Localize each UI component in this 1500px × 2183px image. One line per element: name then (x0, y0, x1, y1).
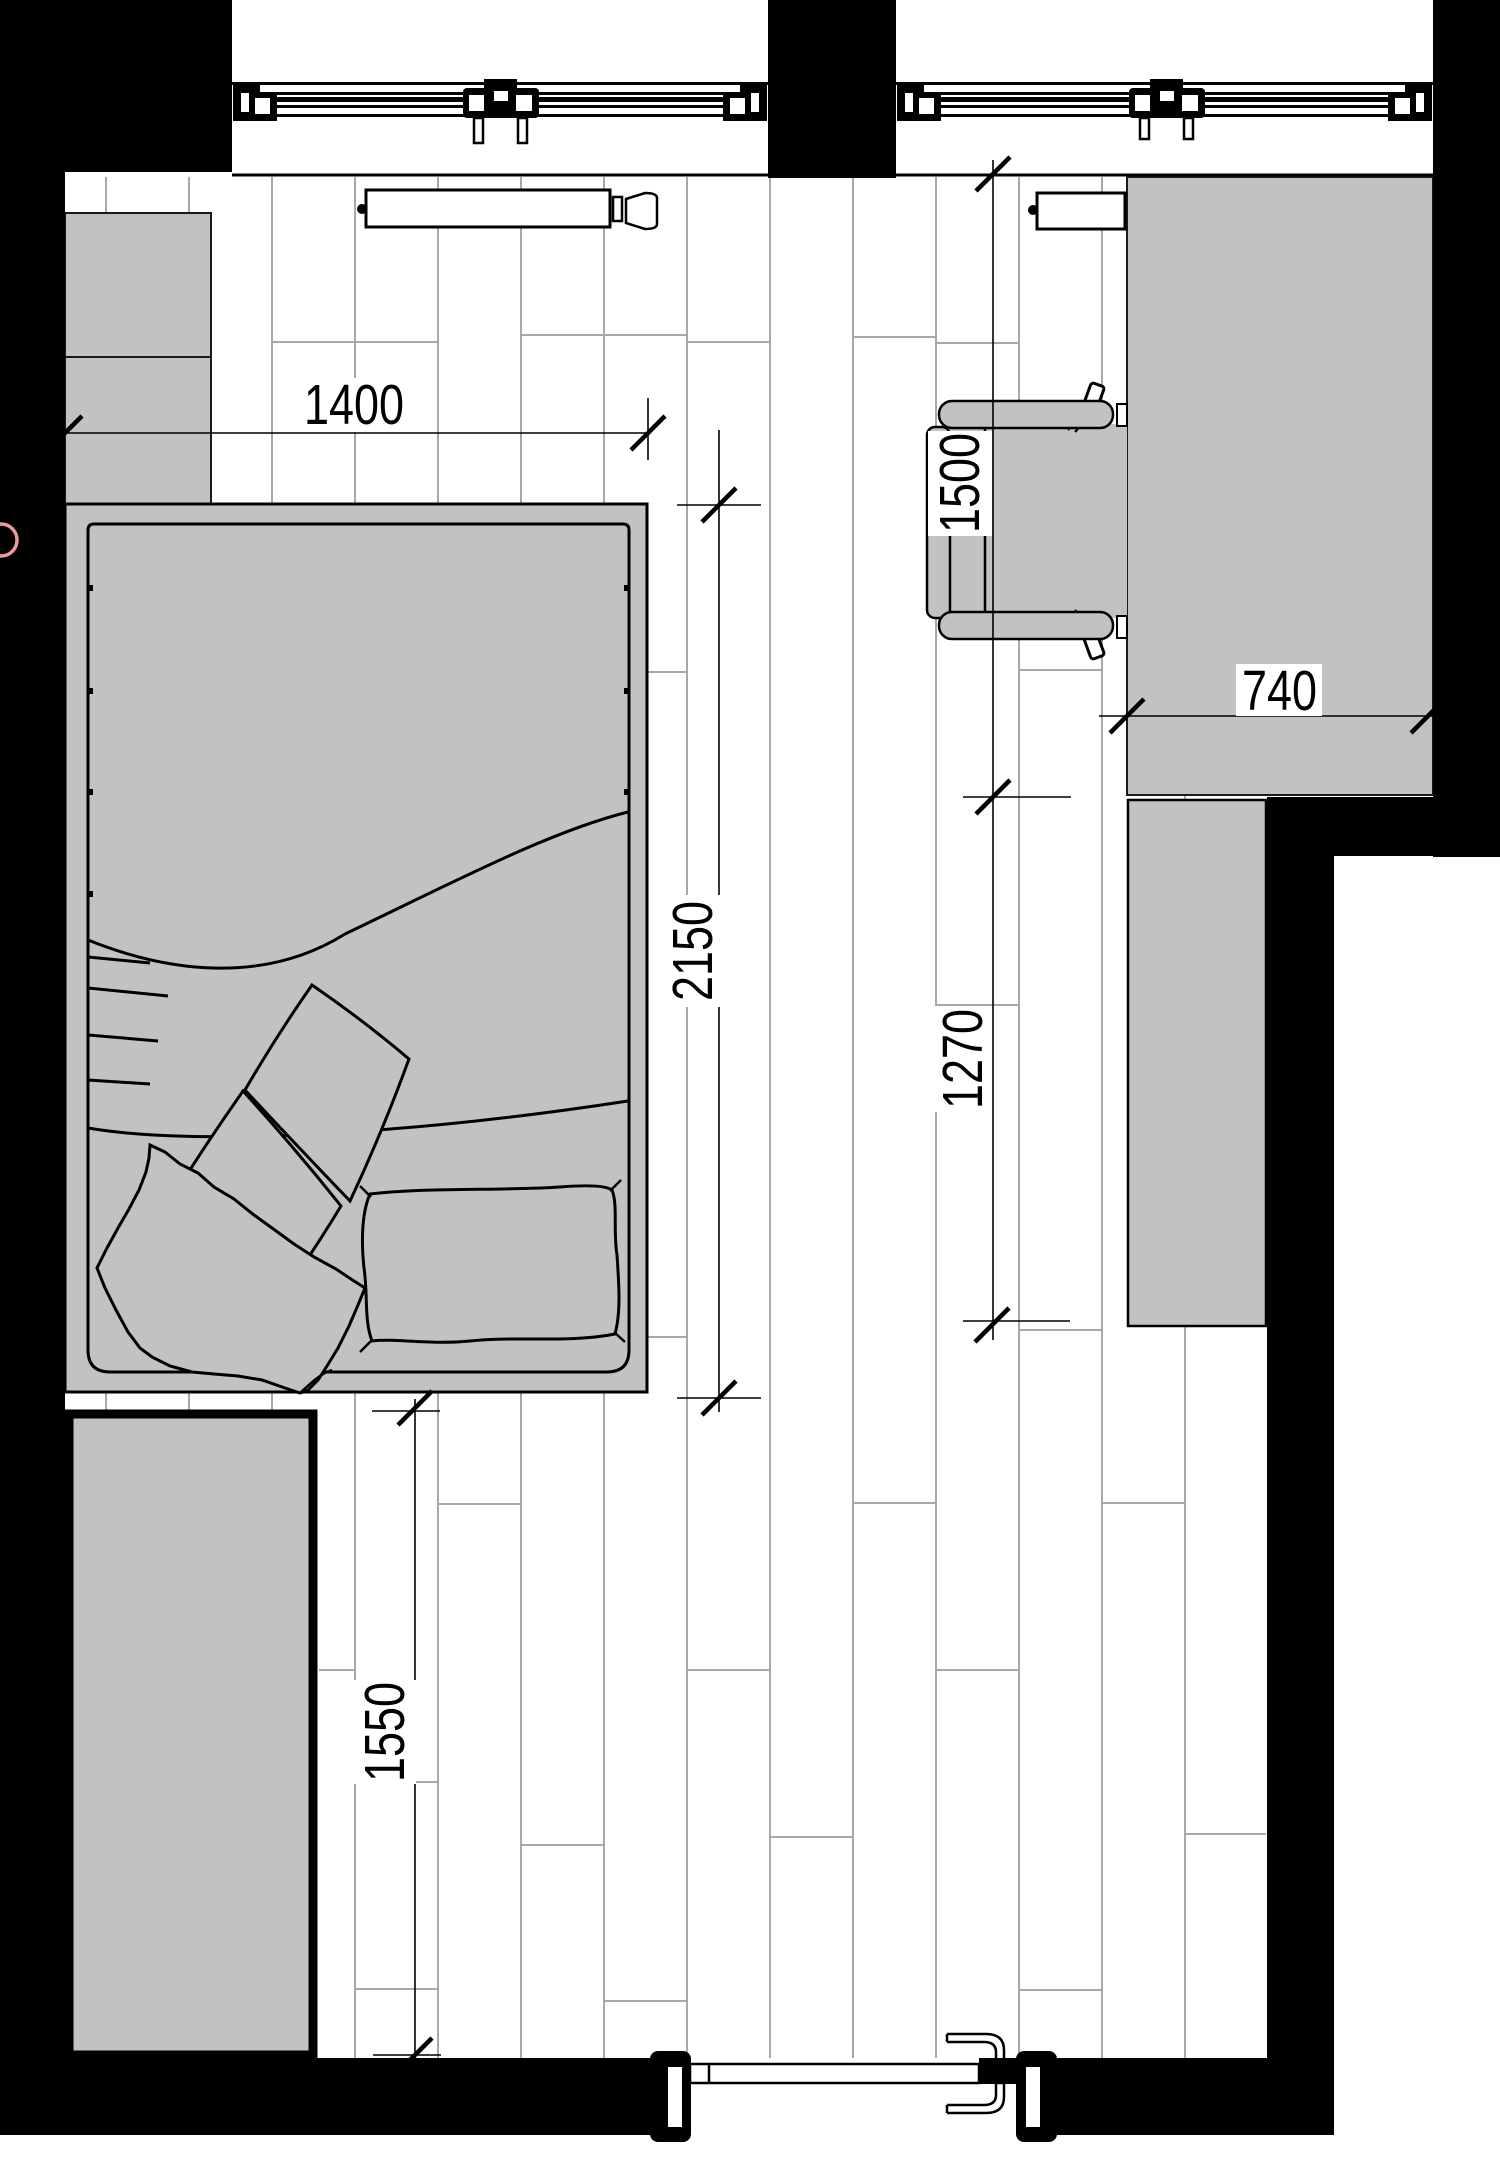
svg-text:740: 740 (1242, 659, 1317, 723)
svg-text:1500: 1500 (928, 433, 992, 533)
svg-text:2150: 2150 (661, 901, 725, 1001)
svg-text:1550: 1550 (353, 1682, 417, 1782)
svg-text:1400: 1400 (304, 373, 404, 437)
svg-text:1270: 1270 (931, 1009, 995, 1109)
